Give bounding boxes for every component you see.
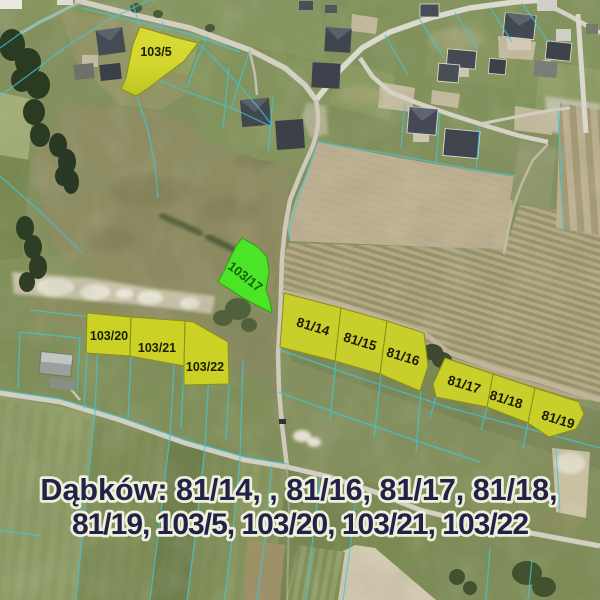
svg-text:81/19, 103/5, 103/20, 103/21,: 81/19, 103/5, 103/20, 103/21, 103/22 [72, 508, 528, 541]
svg-text:103/21: 103/21 [138, 341, 176, 355]
svg-text:Dąbków: 81/14, , 81/16, 81/17,: Dąbków: 81/14, , 81/16, 81/17, 81/18, [40, 473, 557, 507]
svg-text:103/5: 103/5 [140, 45, 171, 59]
svg-text:103/22: 103/22 [186, 360, 224, 374]
svg-text:103/20: 103/20 [90, 329, 128, 343]
